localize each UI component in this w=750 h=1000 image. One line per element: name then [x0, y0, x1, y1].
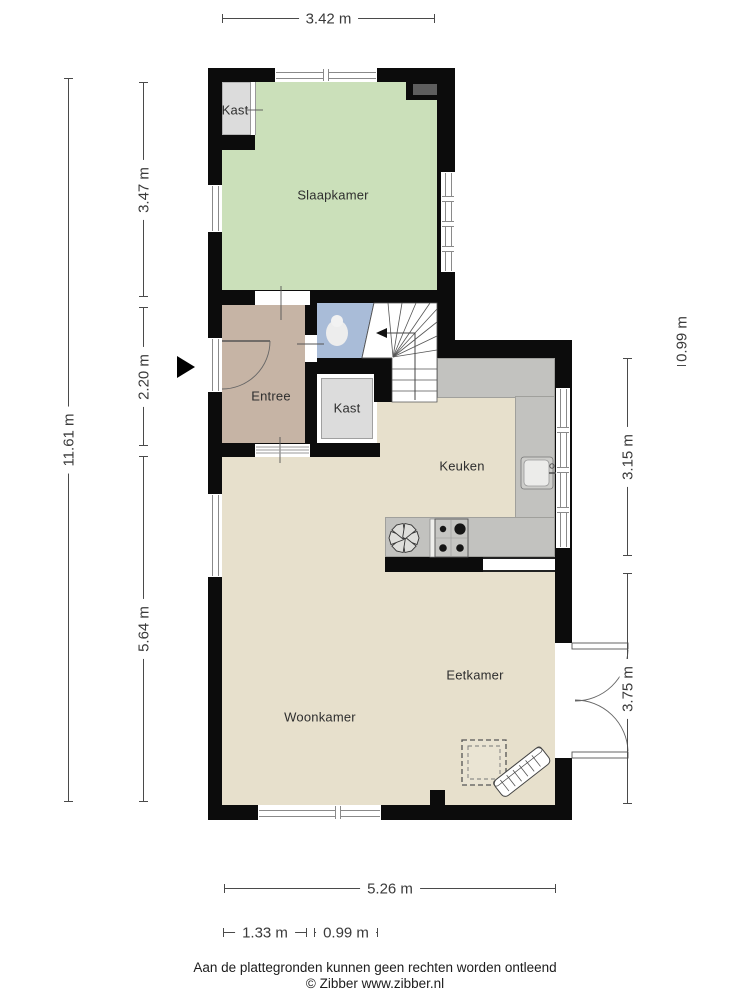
room-label-kast-mid: Kast	[334, 401, 361, 416]
dimension-label: 0.99 m	[316, 925, 376, 942]
dimension-label: 5.64 m	[136, 599, 153, 659]
room-label-woonkamer: Woonkamer	[284, 710, 356, 725]
dimension-bottom-2: 0.99 m	[314, 932, 378, 933]
dimension-top: 3.42 m	[222, 18, 435, 19]
sink-icon	[521, 457, 556, 489]
room-label-keuken: Keuken	[439, 459, 484, 474]
footer: Aan de plattegronden kunnen geen rechten…	[15, 960, 735, 992]
dimension-label: 0.99 m	[674, 309, 691, 369]
threshold-lines	[256, 447, 309, 453]
disclaimer-text: Aan de plattegronden kunnen geen rechten…	[15, 960, 735, 976]
dimension-bottom-total: 5.26 m	[224, 888, 556, 889]
dimension-label: 5.26 m	[360, 881, 420, 898]
dimension-bottom-1: 1.33 m	[223, 932, 307, 933]
dimension-label: 3.47 m	[136, 160, 153, 220]
room-label-eetkamer: Eetkamer	[446, 668, 503, 683]
entrance-arrow-icon	[177, 356, 195, 378]
copyright-text: © Zibber www.zibber.nl	[15, 976, 735, 992]
dimension-label: 1.33 m	[235, 925, 295, 942]
dimension-right-2: 3.15 m	[627, 358, 628, 556]
wall	[317, 358, 374, 374]
dimension-left-total: 11.61 m	[68, 78, 69, 802]
toilet-icon	[331, 315, 343, 327]
floorplan-canvas: Kast Slaapkamer Entree Kast Keuken Eetka…	[0, 0, 750, 1000]
room-label-entree: Entree	[251, 389, 291, 404]
dimension-label: 3.42 m	[299, 11, 359, 28]
wall	[374, 356, 392, 402]
front-door-swing	[222, 341, 270, 389]
dimension-right-1: 0.99 m	[681, 311, 682, 366]
dimension-right-3: 3.75 m	[627, 573, 628, 804]
room-label-slaapkamer: Slaapkamer	[297, 188, 368, 203]
dimension-label: 3.15 m	[620, 427, 637, 487]
dimension-label: 2.20 m	[136, 347, 153, 407]
dimension-left-3: 5.64 m	[143, 456, 144, 802]
plan-detail-overlay	[0, 0, 750, 1000]
extractor-star-icon	[389, 522, 419, 554]
stove-icon	[430, 519, 468, 557]
dimension-label: 11.61 m	[61, 406, 78, 473]
room-label-kast-top: Kast	[222, 103, 249, 118]
dimension-label: 3.75 m	[620, 659, 637, 719]
dimension-left-1: 3.47 m	[143, 82, 144, 297]
dimension-left-2: 2.20 m	[143, 307, 144, 446]
